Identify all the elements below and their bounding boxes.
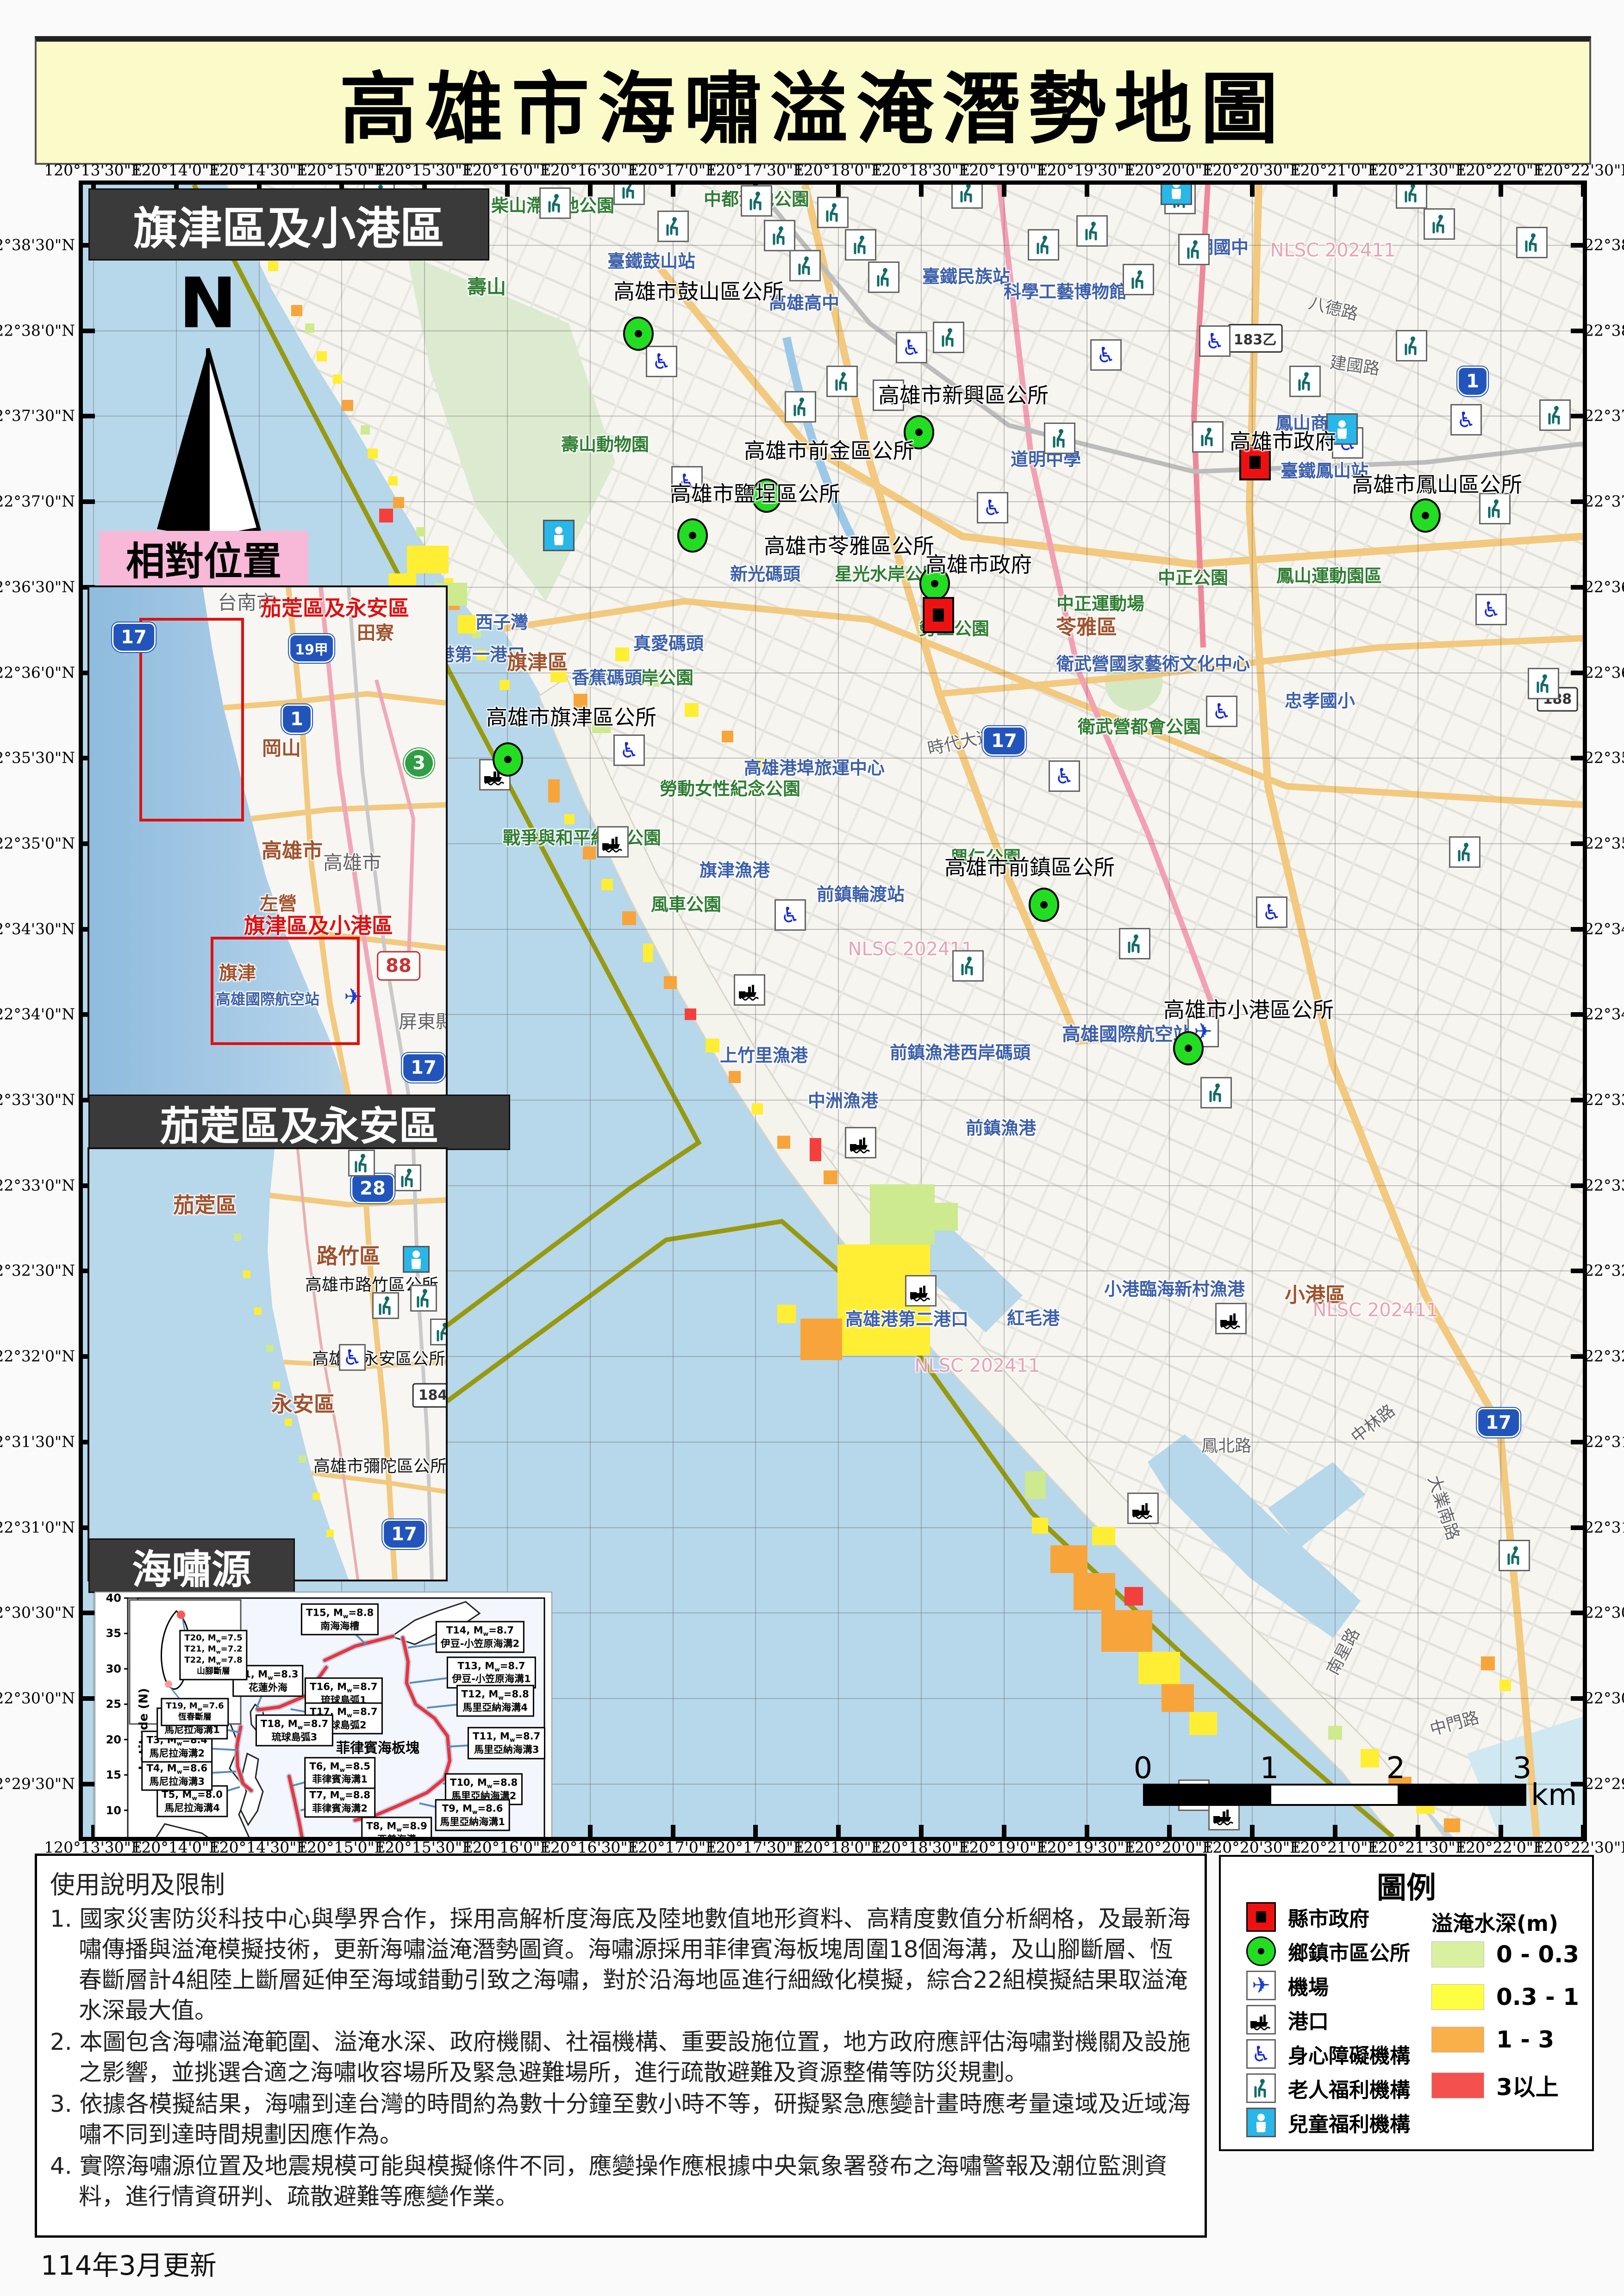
- port-icon: [1127, 1493, 1159, 1524]
- gridline-vertical: [838, 185, 839, 1837]
- inundation-patch-y: [752, 1103, 763, 1114]
- scale-tick-label: 3: [1513, 1751, 1532, 1786]
- tick-right: [1571, 329, 1583, 333]
- tick-right: [1571, 1098, 1583, 1102]
- inundation-patch-r: [810, 1138, 821, 1161]
- lon-label-bottom: 120°22'0"E: [1456, 1838, 1544, 1856]
- map-label: 衛武營國家藝術文化中心: [1056, 650, 1250, 675]
- tick-right: [1571, 243, 1583, 248]
- tsunami-source-chart: 1051101151201251301351401451501551605101…: [94, 1592, 552, 1841]
- lat-label-right: 22°35'30"N: [1584, 749, 1624, 767]
- city-government-marker: [1246, 1902, 1276, 1932]
- legend-item-gov: 縣市政府: [1246, 1902, 1369, 1932]
- tsu-ytick: 25: [106, 1698, 121, 1711]
- lat-label-right: 22°31'0"N: [1584, 1518, 1624, 1536]
- lat-label-right: 22°35'0"N: [1584, 834, 1624, 852]
- map-label: 真愛碼頭: [633, 629, 704, 655]
- lon-label-top: 120°15'30"E: [375, 161, 473, 179]
- route-shield-3: 3: [404, 748, 434, 778]
- office-label: 高雄市小港區公所: [1163, 993, 1334, 1024]
- inundation-patch-r: [379, 509, 393, 523]
- inset-inundation-patch: [266, 1344, 274, 1352]
- map-label: 高雄市: [262, 834, 323, 864]
- inset-inundation-patch: [326, 1530, 334, 1537]
- tick-right: [1571, 1440, 1583, 1444]
- inundation-patch-o: [1444, 1818, 1460, 1832]
- inundation-patch-y: [500, 680, 510, 690]
- scale-tick-label: 1: [1260, 1751, 1279, 1786]
- route-shield-17: 17: [112, 622, 156, 652]
- elderly-care-icon: [1396, 330, 1427, 361]
- map-label: 建國路: [1329, 349, 1381, 380]
- map-label: 八德路: [1306, 290, 1361, 325]
- legend: 圖例 溢淹水深(m) 縣市政府鄉鎮市區公所✈機場港口♿身心障礙機構老人福利機構兒…: [1219, 1855, 1594, 2151]
- tick-right: [1571, 499, 1583, 504]
- scale-tick-label: 0: [1134, 1751, 1153, 1786]
- elderly-care-icon: [1289, 366, 1321, 397]
- tick-right: [1571, 927, 1583, 932]
- office-label: 高雄市鼓山區公所: [613, 275, 784, 305]
- office-label: 高雄市前金區公所: [744, 434, 914, 465]
- lon-label-top: 120°21'30"E: [1368, 161, 1467, 179]
- elderly-icon: [1246, 2073, 1276, 2103]
- gridline-vertical: [1500, 185, 1501, 1837]
- tick-right: [1571, 671, 1583, 675]
- elderly-care-icon: [372, 1292, 399, 1319]
- tick-bottom: [1581, 1825, 1586, 1837]
- map-label: 高雄市彌陀區公所: [313, 1453, 447, 1477]
- tick-bottom: [1416, 1825, 1420, 1837]
- north-arrow: N: [143, 263, 273, 550]
- tick-left: [83, 1782, 95, 1786]
- map-label: 壽山: [467, 272, 506, 300]
- map-label: 臺鐵民族站: [922, 262, 1010, 288]
- map-label: 臺鐵鼓山站: [607, 247, 695, 273]
- inundation-patch-g: [416, 527, 425, 536]
- inundation-patch-o: [722, 731, 733, 742]
- lat-label-right: 22°32'30"N: [1584, 1262, 1624, 1280]
- lat-label-left: 22°29'30"N: [0, 1774, 75, 1792]
- disabled-access-icon: ♿: [1475, 594, 1507, 625]
- office-label: 高雄市政府: [925, 548, 1032, 579]
- tick-left: [83, 1696, 95, 1701]
- route-shield-17: 17: [982, 726, 1026, 756]
- inundation-patch-g: [930, 1203, 958, 1231]
- route-shield-19甲: 19甲: [289, 634, 334, 663]
- township-office-marker: [623, 317, 654, 351]
- inundation-patch-y: [1032, 1518, 1048, 1534]
- map-label: 新光碼頭: [730, 560, 800, 585]
- lat-label-left: 22°33'30"N: [0, 1091, 75, 1109]
- inset-inundation-patch: [312, 1493, 320, 1500]
- update-date: 114年3月更新: [41, 2244, 217, 2283]
- tsunami-source-T13: T13, Mw=8.7伊豆-小笠原海溝1: [447, 1656, 536, 1688]
- inundation-patch-y: [777, 1305, 796, 1323]
- lat-label-right: 22°37'0"N: [1584, 492, 1624, 510]
- route-shield-17: 17: [402, 1053, 445, 1083]
- elderly-care-icon: [1200, 1077, 1232, 1108]
- inundation-patch-y: [1092, 1527, 1115, 1545]
- elderly-care-icon: [817, 197, 849, 228]
- elderly-care-icon: [1539, 399, 1571, 431]
- inset-qieding-yongan: 茄萣區路竹區高雄市路竹區公所高雄市永安區公所永安區高雄市彌陀區公所2818417…: [87, 1147, 448, 1581]
- city-government-marker: [923, 597, 954, 633]
- map-label: 西子灣: [475, 608, 528, 634]
- tick-top: [1250, 185, 1255, 197]
- tick-bottom: [753, 1825, 758, 1837]
- inset2-title: 茄萣區及永安區: [160, 1094, 439, 1151]
- township-office-marker: [677, 518, 708, 553]
- tsunami-source-T14: T14, Mw=8.7伊豆-小笠原海溝2: [436, 1621, 525, 1653]
- main-map: 柴山滯洪池公園中都濕地公園壽山壽山動物園旗津海岸公園勞動女性紀念公園戰爭與和平紀…: [79, 180, 1587, 1841]
- tick-right: [1571, 1525, 1583, 1530]
- map-label: 上竹里漁港: [720, 1041, 808, 1067]
- inundation-patch-y: [333, 374, 342, 384]
- lon-label-top: 120°15'0"E: [297, 161, 386, 179]
- township-office-marker: [1410, 498, 1441, 533]
- inundation-patch-o: [729, 1071, 741, 1083]
- tsunami-source-T4: T4, Mw=8.6馬尼拉海溝3: [142, 1759, 213, 1791]
- map-label: 高雄港埠旅運中心: [744, 754, 885, 779]
- legend-depth-item: 0.3 - 1: [1431, 1984, 1579, 2010]
- child-welfare-icon: [403, 1246, 430, 1273]
- tick-right: [1571, 841, 1583, 846]
- elderly-care-icon: [741, 185, 772, 217]
- map-label: 戰爭與和平紀念公園: [503, 824, 661, 849]
- legend-item-elderly: 老人福利機構: [1246, 2073, 1410, 2103]
- tick-top: [1085, 185, 1089, 197]
- route-shield-184: 184: [412, 1383, 448, 1408]
- lon-label-bottom: 120°20'30"E: [1203, 1838, 1301, 1856]
- inundation-patch-y: [601, 879, 613, 890]
- inundation-patch-o: [291, 305, 302, 316]
- lat-label-right: 22°38'30"N: [1584, 236, 1624, 254]
- depth-swatch: [1431, 1984, 1484, 2010]
- lon-label-top: 120°16'30"E: [541, 161, 639, 179]
- inundation-patch-o: [1101, 1610, 1152, 1652]
- route-shield-28: 28: [351, 1174, 394, 1203]
- region-title: 旗津區及小港區: [133, 193, 444, 257]
- north-arrow-glyph: [143, 344, 273, 543]
- lat-label-right: 22°34'30"N: [1584, 920, 1624, 938]
- map-label: 前鎮輪渡站: [817, 880, 905, 906]
- elderly-care-icon: [826, 366, 858, 397]
- legend-label: 老人福利機構: [1288, 2073, 1410, 2103]
- elderly-care-icon: [657, 211, 689, 242]
- inundation-patch-g: [870, 1184, 935, 1244]
- township-office-marker: [1246, 1936, 1276, 1966]
- elderly-care-icon: [764, 220, 795, 251]
- disabled-access-icon: ♿: [1090, 339, 1122, 371]
- legend-item-port: 港口: [1246, 2005, 1329, 2035]
- lat-label-right: 22°36'0"N: [1584, 663, 1624, 681]
- gridline-vertical: [1418, 185, 1418, 1837]
- disabled-icon: ♿: [1246, 2039, 1276, 2069]
- depth-swatch: [1431, 2027, 1484, 2053]
- lon-label-top: 120°22'30"E: [1534, 161, 1624, 179]
- tick-bottom: [588, 1825, 593, 1837]
- tick-right: [1571, 1611, 1583, 1615]
- tick-top: [1333, 185, 1337, 197]
- inundation-patch-r: [685, 1008, 696, 1020]
- elderly-care-icon: [1119, 928, 1150, 959]
- tsu-ytick: 40: [106, 1592, 121, 1605]
- map-label: 中林路: [1345, 1398, 1399, 1447]
- route-shield-88: 88: [377, 951, 420, 981]
- inundation-patch-g: [305, 324, 314, 333]
- inundation-patch-o: [664, 976, 677, 989]
- inundation-patch-o: [824, 1170, 837, 1184]
- legend-label: 機場: [1288, 1971, 1329, 2000]
- elderly-care-icon: [789, 250, 821, 281]
- lon-label-top: 120°17'30"E: [706, 161, 804, 179]
- disabled-access-icon: ♿: [775, 899, 806, 931]
- lat-label-left: 22°30'0"N: [0, 1689, 75, 1707]
- tsunami-source-T11: T11, Mw=8.7馬里亞納海溝3: [468, 1727, 545, 1759]
- map-label: 高雄市永安區公所: [312, 1345, 445, 1369]
- map-label: 鳳山運動園區: [1276, 562, 1382, 587]
- inundation-patch-y: [1499, 1680, 1511, 1691]
- legend-item-airport: ✈機場: [1246, 1971, 1329, 2000]
- tsunami-title: 海嘯源: [132, 1537, 251, 1595]
- port-icon: [1215, 1303, 1247, 1334]
- elderly-care-icon: [539, 187, 571, 219]
- map-label: NLSC 202411: [1270, 240, 1396, 261]
- township-office-marker: [493, 742, 523, 777]
- inset-inundation-patch: [285, 1419, 292, 1426]
- disabled-access-icon: ♿: [1450, 404, 1482, 436]
- tick-right: [1571, 1354, 1583, 1359]
- lat-label-left: 22°34'0"N: [0, 1005, 75, 1023]
- usage-notes: 使用說明及限制 1. 國家災害防災科技中心與學界合作，採用高解析度海底及陸地數值…: [35, 1854, 1207, 2238]
- tsu-ytick: 20: [106, 1733, 121, 1746]
- disabled-access-icon: ♿: [1199, 325, 1230, 357]
- gridline-horizontal: [83, 416, 1583, 417]
- inundation-patch-y: [615, 647, 629, 661]
- relative-position-label: 相對位置: [126, 530, 281, 586]
- inundation-patch-y: [1138, 1652, 1180, 1684]
- depth-label: 3以上: [1496, 2069, 1559, 2102]
- airport-icon: ✈: [339, 983, 368, 1011]
- tick-top: [1002, 185, 1006, 197]
- legend-label: 縣市政府: [1288, 1902, 1369, 1932]
- lat-label-right: 22°30'30"N: [1584, 1604, 1624, 1622]
- map-label: 中門路: [1427, 1704, 1481, 1740]
- map-label: 中洲漁港: [808, 1087, 878, 1112]
- elderly-care-icon: [1449, 836, 1480, 868]
- lon-label-top: 120°16'0"E: [463, 161, 551, 179]
- lon-label-top: 120°18'0"E: [794, 161, 882, 179]
- tick-right: [1571, 1012, 1583, 1017]
- lon-label-top: 120°18'30"E: [872, 161, 970, 179]
- map-label: 高雄港第二港口: [845, 1305, 968, 1331]
- elderly-care-icon: [410, 1285, 437, 1312]
- office-label: 高雄市鳳山區公所: [1352, 468, 1522, 498]
- scale-unit: km: [1531, 1778, 1577, 1812]
- tick-bottom: [1250, 1825, 1255, 1837]
- tsu-ytick: 15: [106, 1768, 121, 1781]
- map-label: NLSC 202411: [915, 1355, 1040, 1376]
- map-label: 高雄市: [323, 847, 381, 876]
- map-label: 南星路: [1320, 1623, 1365, 1679]
- inundation-patch-o: [800, 1319, 842, 1360]
- lat-label-right: 22°30'0"N: [1584, 1689, 1624, 1707]
- map-label: 大業南路: [1423, 1472, 1467, 1543]
- port-icon: [1246, 2005, 1276, 2035]
- lat-label-left: 22°36'30"N: [0, 578, 75, 596]
- legend-label: 身心障礙機構: [1288, 2039, 1410, 2069]
- lat-label-right: 22°31'30"N: [1584, 1432, 1624, 1450]
- elderly-care-icon: [1123, 264, 1154, 295]
- depth-label: 0 - 0.3: [1496, 1941, 1579, 1968]
- inundation-patch-o: [1074, 1573, 1115, 1610]
- elderly-care-icon: [1044, 423, 1075, 454]
- map-label: 旗津漁港: [700, 856, 770, 882]
- lat-label-left: 22°31'0"N: [0, 1518, 75, 1536]
- gridline-vertical: [1004, 185, 1005, 1837]
- map-label: 鳳北路: [1201, 1432, 1251, 1456]
- lat-label-left: 22°31'30"N: [0, 1432, 75, 1450]
- inundation-patch-g: [1328, 1726, 1342, 1740]
- lat-label-right: 22°38'0"N: [1584, 321, 1624, 339]
- inundation-patch-y: [368, 448, 378, 459]
- port-icon: [905, 1275, 937, 1307]
- inundation-patch-g: [1025, 1471, 1046, 1499]
- elderly-care-icon: [394, 1164, 421, 1191]
- map-label: 香蕉碼頭: [572, 664, 642, 689]
- tsunami-source-T12: T12, Mw=8.8馬里亞納海溝4: [456, 1685, 534, 1717]
- lon-label-bottom: 120°22'30"E: [1534, 1838, 1624, 1856]
- legend-item-disabled: ♿身心障礙機構: [1246, 2039, 1410, 2069]
- depth-label: 0.3 - 1: [1496, 1984, 1579, 2010]
- legend-label: 鄉鎮市區公所: [1288, 1936, 1410, 1966]
- lon-label-bottom: 120°21'30"E: [1368, 1838, 1467, 1856]
- usage-note-1: 1. 國家災害防災科技中心與學界合作，採用高解析度海底及陸地數值地形資料、高精度…: [50, 1904, 1192, 2026]
- route-shield-1: 1: [281, 704, 312, 734]
- office-label: 高雄市鹽埕區公所: [670, 477, 840, 508]
- tick-right: [1571, 1269, 1583, 1273]
- lon-label-top: 120°14'0"E: [131, 161, 220, 179]
- inundation-patch-r: [1124, 1587, 1143, 1605]
- lat-label-right: 22°34'0"N: [1584, 1005, 1624, 1023]
- philippine-sea-plate-label: 菲律賓海板塊: [336, 1736, 419, 1757]
- map-label: 小港臨海新村漁港: [1104, 1275, 1245, 1300]
- lat-label-left: 22°37'30"N: [0, 407, 75, 425]
- usage-note-4: 4. 實際海嘯源位置及地震規模可能與模擬條件不同，應變操作應根據中央氣象署發布之…: [50, 2151, 1192, 2212]
- inset-relative-position: 台南市田寮岡山高雄市高雄市左營旗津高雄國際航空站屏東縣茄萣區及永安區旗津區及小港…: [87, 585, 448, 1098]
- map-label: 壽山動物園: [561, 430, 649, 456]
- map-label: 紅毛港: [1007, 1304, 1060, 1330]
- tick-left: [83, 329, 95, 333]
- inset-inundation-patch: [254, 1307, 262, 1315]
- tick-top: [836, 185, 841, 197]
- route-shield-17: 17: [382, 1519, 426, 1549]
- inundation-patch-y: [1189, 1712, 1217, 1735]
- lon-label-top: 120°20'30"E: [1203, 161, 1301, 179]
- gridline-vertical: [673, 185, 674, 1837]
- disabled-access-icon: ♿: [977, 492, 1008, 523]
- lat-label-left: 22°38'0"N: [0, 321, 75, 339]
- inset-inundation-patch: [243, 1270, 250, 1278]
- inundation-patch-o: [1050, 1545, 1087, 1573]
- elderly-care-icon: [785, 391, 816, 423]
- elderly-care-icon: [1028, 229, 1059, 261]
- tsunami-source-T9: T9, Mw=8.6馬里亞納海溝1: [435, 1799, 510, 1831]
- inset-red-title: 茄萣區及永安區: [260, 591, 409, 622]
- elderly-care-icon: [1076, 215, 1108, 247]
- lat-label-left: 22°35'0"N: [0, 834, 75, 852]
- child-welfare-icon: [543, 520, 575, 551]
- inset2-title-box: 茄萣區及永安區: [88, 1095, 510, 1150]
- tick-right: [1571, 756, 1583, 760]
- usage-notes-title: 使用說明及限制: [50, 1864, 1192, 1901]
- route-shield-183乙: 183乙: [1228, 324, 1283, 353]
- inundation-patch-o: [548, 779, 560, 803]
- fault-label-hengchun: T19, Mw=7.6恆春斷層: [161, 1698, 229, 1726]
- child-icon: [1246, 2108, 1276, 2137]
- tick-right: [1571, 585, 1583, 590]
- lat-label-right: 22°36'30"N: [1584, 578, 1624, 596]
- usage-note-3: 3. 依據各模擬結果，海嘯到達台灣的時間約為數十分鐘至數小時不等，研擬緊急應變計…: [50, 2089, 1192, 2150]
- lat-label-left: 22°37'0"N: [0, 492, 75, 510]
- map-label: NLSC 202411: [1313, 1300, 1438, 1321]
- inset-red-title: 旗津區及小港區: [244, 909, 393, 940]
- lon-label-top: 120°19'30"E: [1037, 161, 1136, 179]
- elderly-care-icon: [1178, 234, 1210, 265]
- elderly-care-icon: [1424, 208, 1455, 240]
- airport-icon: ✈: [1246, 1971, 1276, 2000]
- depth-label: 1 - 3: [1496, 2026, 1554, 2053]
- lon-label-top: 120°20'0"E: [1125, 161, 1213, 179]
- inundation-patch-o: [1481, 1656, 1495, 1670]
- inset-extent-rect: [139, 618, 244, 821]
- port-icon: [734, 974, 765, 1006]
- tsunami-source-T15: T15, Mw=8.8南海海槽: [301, 1603, 379, 1635]
- legend-depth-item: 0 - 0.3: [1431, 1941, 1579, 1968]
- office-label: 高雄市新興區公所: [878, 379, 1049, 409]
- tsunami-title-box: 海嘯源: [88, 1538, 295, 1593]
- legend-label: 港口: [1288, 2005, 1329, 2035]
- lat-label-right: 22°33'0"N: [1584, 1176, 1624, 1194]
- map-label: 岡山: [262, 733, 301, 761]
- map-label: 中正公園: [1158, 564, 1228, 589]
- disabled-access-icon: ♿: [1256, 896, 1287, 928]
- tick-bottom: [671, 1825, 675, 1837]
- tick-bottom: [1333, 1825, 1337, 1837]
- legend-item-office: 鄉鎮市區公所: [1246, 1936, 1410, 1966]
- tick-bottom: [836, 1825, 841, 1837]
- elderly-care-icon: [1528, 668, 1559, 699]
- inset-extent-rect: [211, 937, 360, 1045]
- map-label: 茄萣區: [173, 1188, 237, 1219]
- lon-label-top: 120°22'0"E: [1456, 161, 1544, 179]
- inundation-patch-y: [388, 476, 398, 485]
- tick-top: [671, 185, 675, 197]
- lon-label-top: 120°17'0"E: [628, 161, 717, 179]
- tick-top: [1499, 185, 1503, 197]
- inundation-patch-o: [342, 400, 353, 411]
- fault-label-shanjiao: T20, Mw=7.5T21, Mw=7.2T22, Mw=7.8山腳斷層: [179, 1630, 247, 1680]
- lon-label-top: 120°13'30"E: [44, 161, 142, 179]
- lon-label-top: 120°19'0"E: [959, 161, 1048, 179]
- elderly-care-icon: [348, 1150, 375, 1176]
- tick-left: [83, 499, 95, 504]
- tick-left: [83, 1611, 95, 1615]
- tick-bottom: [1002, 1825, 1006, 1837]
- inundation-patch-o: [777, 1136, 790, 1149]
- tsunami-source-T8: T8, Mw=8.9亞普海溝: [361, 1817, 432, 1841]
- tick-bottom: [1085, 1825, 1089, 1837]
